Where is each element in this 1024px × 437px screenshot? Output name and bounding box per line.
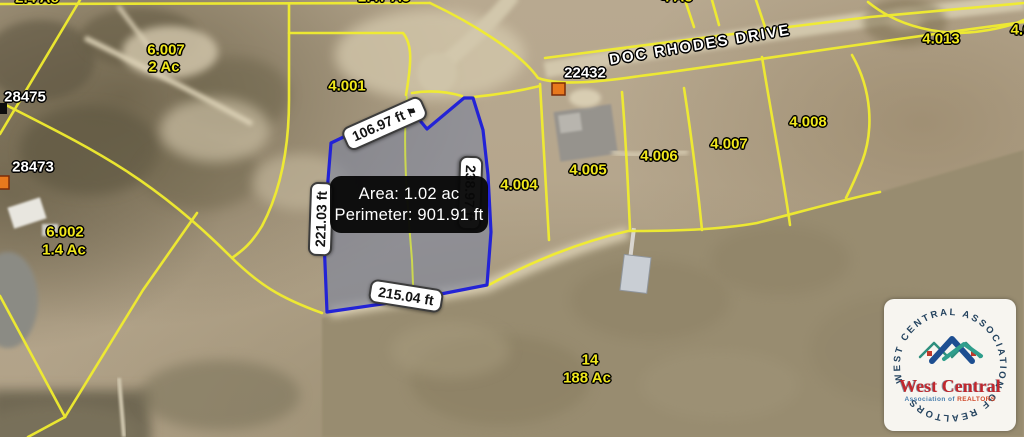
parcel-label-cut-4ac: 4 Ac [661, 0, 692, 5]
logo-graphic: WEST CENTRAL ASSOCIATION OF REALTORS ® [884, 299, 1016, 431]
address-label-28475: 28475 [4, 90, 46, 105]
parcel-label-cut-right: 4.0 [1011, 23, 1024, 38]
parcel-label-cut-247: 2.47 Ac [358, 0, 410, 5]
parcel-label-4006: 4.006 [640, 149, 678, 164]
measurement-bottom-text: 215.04 ft [377, 284, 435, 309]
svg-text:WEST CENTRAL ASSOCIATION OF RE: WEST CENTRAL ASSOCIATION OF REALTORS ® [884, 299, 1008, 423]
logo-ring-text: WEST CENTRAL ASSOCIATION OF REALTORS ® [884, 299, 1008, 423]
address-marker-28473[interactable] [0, 176, 9, 189]
parcel-area-6002: 1.4 Ac [42, 243, 86, 258]
realtor-association-logo: WEST CENTRAL ASSOCIATION OF REALTORS ® W… [884, 299, 1016, 431]
parcel-label-6007: 6.007 [147, 43, 185, 58]
parcel-label-4007: 4.007 [710, 137, 748, 152]
tooltip-perimeter-line: Perimeter: 901.91 ft [330, 206, 488, 225]
parcel-label-6002: 6.002 [46, 225, 84, 240]
parcel-area-6007: 2 Ac [148, 60, 179, 75]
logo-name: West Central [884, 377, 1016, 395]
parcel-label-4004: 4.004 [500, 178, 538, 193]
parcel-label-4013: 4.013 [922, 32, 960, 47]
address-marker-22432[interactable] [552, 83, 565, 95]
parcel-label-4008: 4.008 [789, 115, 827, 130]
aerial-parcel-map[interactable]: 2.4 Ac 6.007 2 Ac 4.001 2.47 Ac 4 Ac 4.0… [0, 0, 1024, 437]
measurement-left-text: 221.03 ft [312, 191, 330, 248]
parcel-label-4005: 4.005 [569, 163, 607, 178]
flag-icon: ⚑ [405, 105, 419, 120]
parcel-info-tooltip: Area: 1.02 ac Perimeter: 901.91 ft [330, 176, 488, 233]
parcel-label-14: 14 [582, 353, 599, 368]
house-roof [554, 104, 618, 162]
tooltip-area-line: Area: 1.02 ac [330, 185, 488, 204]
logo-subtitle-realtors: REALTORS [957, 396, 995, 403]
parcel-label-cut-24: 2.4 Ac [15, 0, 59, 6]
logo-subtitle: Association of REALTORS [884, 397, 1016, 404]
address-label-28473: 28473 [12, 160, 54, 175]
address-label-22432: 22432 [564, 66, 606, 81]
logo-subtitle-prefix: Association of [905, 396, 955, 403]
parcel-area-14: 188 Ac [563, 371, 611, 386]
rooftops-icon [920, 339, 981, 361]
parcel-label-4001: 4.001 [328, 79, 366, 94]
